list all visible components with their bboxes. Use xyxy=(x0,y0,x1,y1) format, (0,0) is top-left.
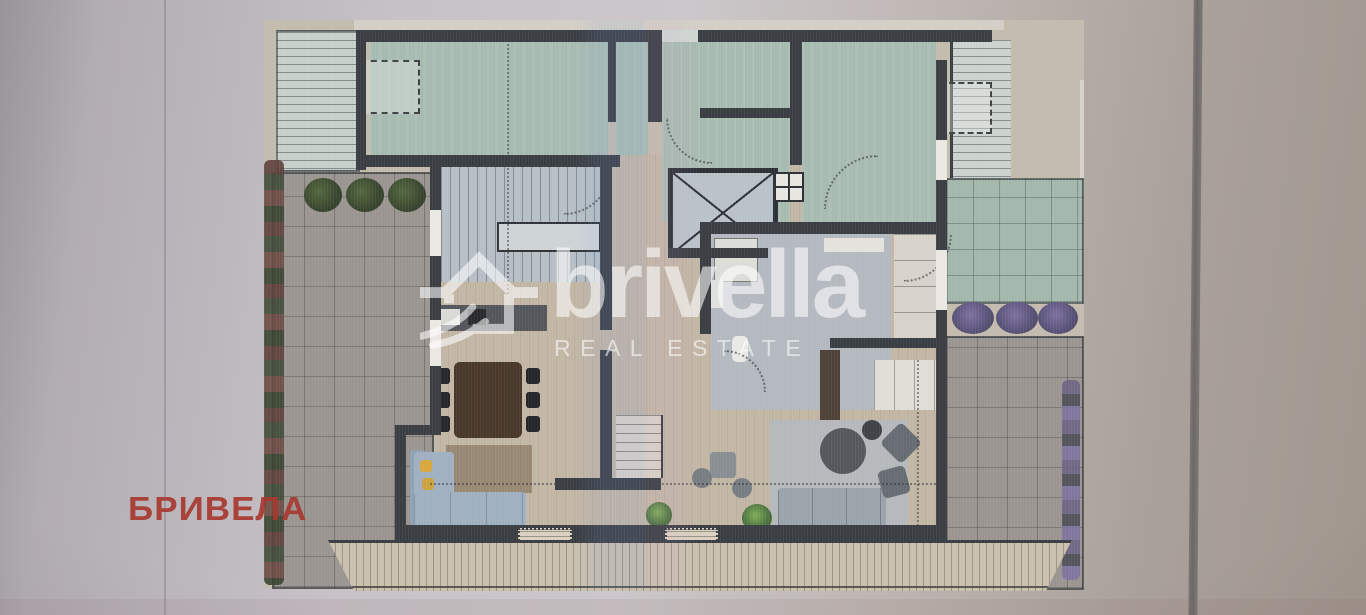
window xyxy=(936,250,947,310)
sofa-body xyxy=(414,492,526,526)
ac-unit-left xyxy=(360,60,420,114)
background-bottom-band xyxy=(0,599,1366,615)
dining-chair xyxy=(526,416,540,432)
ac-unit-right xyxy=(940,82,992,134)
wall-segment xyxy=(555,478,661,490)
wall-segment xyxy=(700,108,796,118)
roof-closet xyxy=(616,42,648,155)
screen-photo: brivella REAL ESTATE БРИВЕЛА xyxy=(0,0,1366,615)
wall-segment xyxy=(356,30,366,170)
paper-edge xyxy=(354,20,1004,30)
chair xyxy=(732,478,752,498)
agency-stamp: БРИВЕЛА xyxy=(128,490,307,528)
background-dark-bar xyxy=(1188,0,1203,615)
dotted-line xyxy=(917,360,919,530)
wall-segment xyxy=(430,155,620,167)
dining-table xyxy=(454,362,522,438)
electrical-panel xyxy=(774,172,804,202)
window xyxy=(936,140,947,180)
rug xyxy=(446,445,532,493)
side-table xyxy=(710,452,736,478)
wardrobe-shelves xyxy=(874,360,936,410)
chair xyxy=(692,468,712,488)
door-gap xyxy=(662,30,698,42)
wall-segment xyxy=(395,425,406,540)
bush xyxy=(346,178,384,212)
dining-chair xyxy=(526,392,540,408)
bush xyxy=(304,178,342,212)
balcony xyxy=(328,540,1072,591)
side-table-round xyxy=(862,420,882,440)
pillow xyxy=(420,460,432,472)
balcony-rail-line xyxy=(328,586,1072,588)
watermark-logo: brivella REAL ESTATE xyxy=(420,246,862,362)
wall-segment xyxy=(600,350,612,480)
purple-bush xyxy=(996,302,1038,334)
wall-segment xyxy=(648,30,662,122)
bush xyxy=(388,178,426,212)
wall-segment xyxy=(364,155,430,167)
house-icon xyxy=(420,246,538,350)
coffee-table-round xyxy=(820,428,866,474)
dotted-line xyxy=(430,483,940,485)
stairs-down xyxy=(616,415,663,478)
dining-chair xyxy=(526,368,540,384)
roof-hatch-strip-left xyxy=(276,30,360,172)
tagline-text: REAL ESTATE xyxy=(554,335,862,362)
purple-bush xyxy=(1038,302,1078,334)
brand-text: brivella xyxy=(550,246,862,325)
watermark-text-block: brivella REAL ESTATE xyxy=(550,246,862,362)
wall-segment xyxy=(790,30,802,165)
living-sofa xyxy=(778,488,886,530)
terrace-right-green xyxy=(945,178,1084,304)
purple-bush xyxy=(952,302,994,334)
wall-segment xyxy=(608,30,616,122)
